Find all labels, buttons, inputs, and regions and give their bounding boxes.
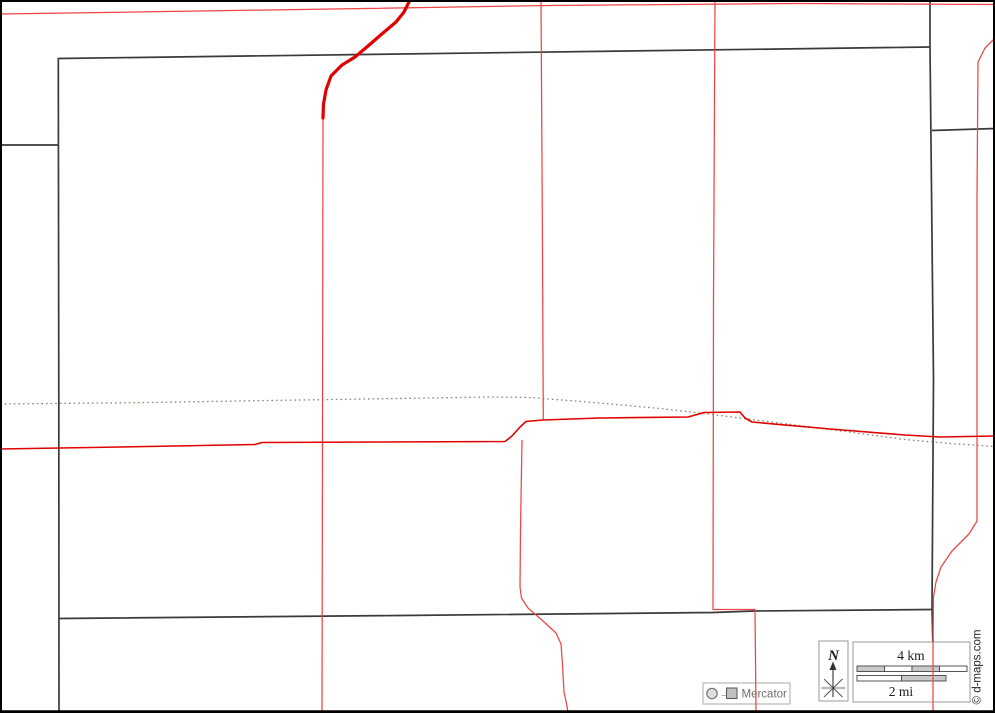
projection-label: Mercator — [742, 689, 788, 701]
scale-bar-segment — [885, 666, 913, 672]
scale-km-label: 4 km — [897, 648, 925, 663]
scale-bar-segment — [902, 676, 947, 682]
scale-bar-km — [857, 666, 967, 672]
scale-bar-segment — [857, 666, 885, 672]
scale-bar-segment — [912, 666, 940, 672]
scale-box: 4 km 2 mi — [853, 642, 970, 702]
north-arrow-box: N — [819, 641, 848, 701]
scale-bar-segment — [940, 666, 968, 672]
map-page: N 4 km 2 mi → Mercator © d-m — [0, 0, 995, 713]
map-background — [0, 0, 995, 713]
copyright-credit: © d-maps.com — [972, 630, 984, 705]
flat-map-square-icon — [727, 688, 738, 699]
boundary-line — [58, 58, 59, 713]
projection-box: → Mercator — [703, 683, 790, 704]
north-label: N — [827, 648, 840, 664]
scale-mi-label: 2 mi — [889, 684, 914, 699]
scale-bar-segment — [857, 676, 902, 682]
map-canvas: N 4 km 2 mi → Mercator © d-m — [0, 0, 995, 713]
globe-circle-icon — [707, 688, 717, 698]
